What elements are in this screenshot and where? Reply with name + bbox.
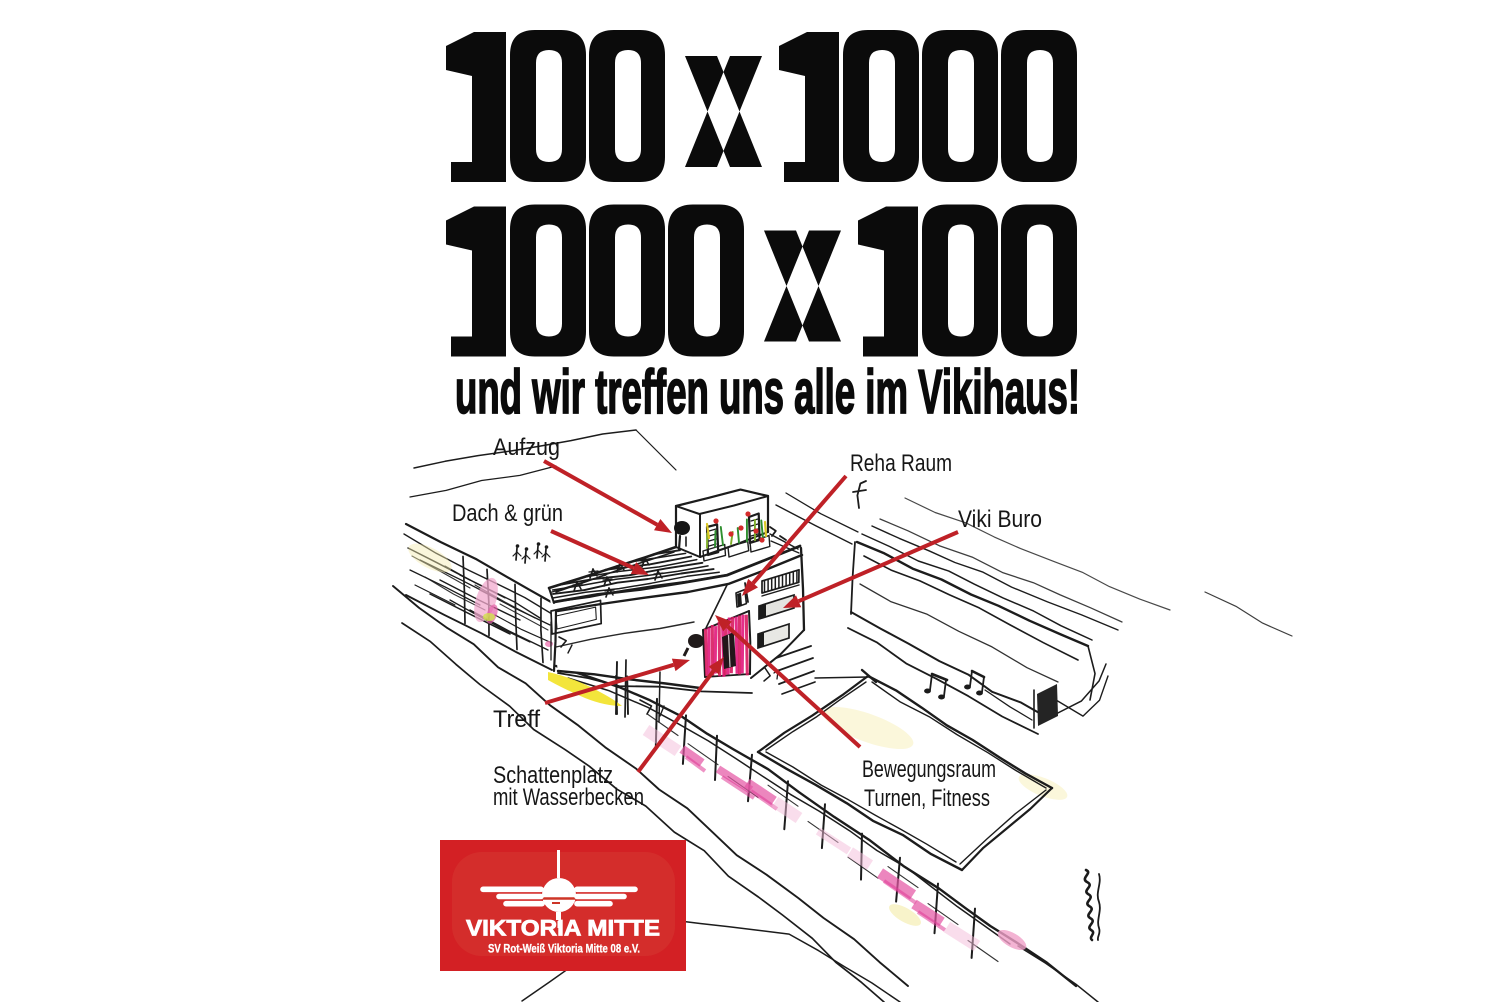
svg-text:und wir treffen uns alle im Vi: und wir treffen uns alle im Vikihaus! [455, 358, 1080, 427]
svg-text:Viki Buro: Viki Buro [958, 506, 1042, 533]
svg-text:Bewegungsraum: Bewegungsraum [862, 756, 996, 783]
svg-text:Turnen, Fitness: Turnen, Fitness [864, 785, 990, 812]
svg-text:Dach & grün: Dach & grün [452, 500, 563, 527]
svg-text:Aufzug: Aufzug [493, 434, 560, 461]
svg-text:SV Rot-Weiß Viktoria Mitte 08: SV Rot-Weiß Viktoria Mitte 08 e.V. [488, 942, 640, 956]
svg-text:Treff: Treff [493, 706, 540, 733]
svg-text:VIKTORIA MITTE: VIKTORIA MITTE [466, 916, 660, 941]
svg-text:Reha Raum: Reha Raum [850, 450, 952, 477]
svg-text:mit Wasserbecken: mit Wasserbecken [493, 784, 644, 811]
